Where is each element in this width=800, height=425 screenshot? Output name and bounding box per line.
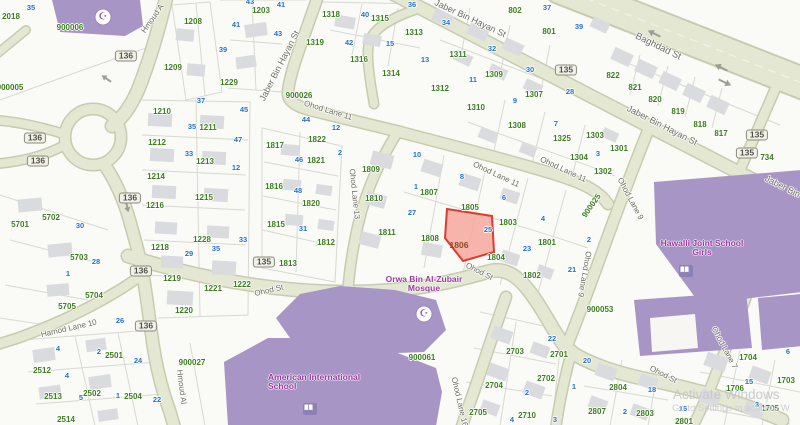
book-glyph — [679, 265, 690, 274]
activate-windows-watermark-subtext: Go to Settings to activate W — [672, 403, 790, 414]
school-book-icon[interactable] — [303, 403, 317, 415]
courtyard — [650, 314, 698, 352]
selected-parcel-label: 1806 — [450, 240, 469, 250]
hawalli-school-building-east — [758, 294, 800, 350]
book-glyph — [303, 403, 314, 412]
hawalli-school-building-main — [654, 170, 800, 304]
mosque-crescent-icon[interactable]: ☪ — [96, 10, 111, 25]
selected-parcel[interactable] — [445, 209, 494, 261]
poi-buildings — [52, 0, 800, 425]
mosque-crescent-icon[interactable]: ☪ — [417, 307, 432, 322]
map-canvas[interactable]: 9000062018900005120812091203122913181315… — [0, 0, 800, 425]
map-geometry-layer — [0, 0, 800, 425]
activate-windows-watermark: Activate Windows — [673, 387, 780, 402]
school-book-icon[interactable] — [679, 265, 693, 277]
